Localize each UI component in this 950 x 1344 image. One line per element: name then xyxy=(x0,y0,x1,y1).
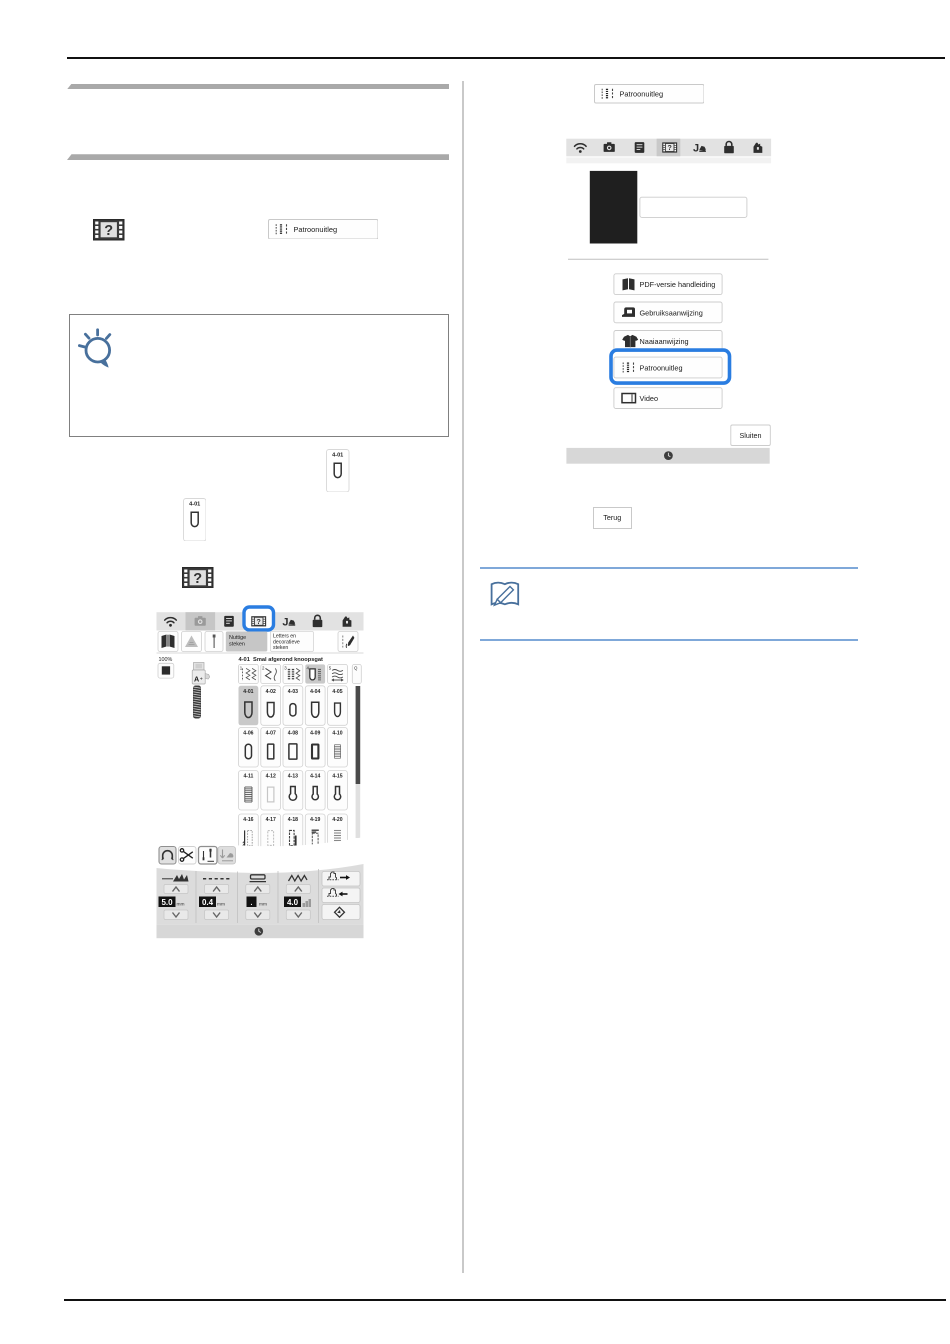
svg-text:4-01: 4-01 xyxy=(243,689,253,695)
svg-text:4-01 Smal afgerond knoopsgat: 4-01 Smal afgerond knoopsgat xyxy=(239,657,323,663)
svg-text:PDF-versie handleiding: PDF-versie handleiding xyxy=(640,280,716,289)
svg-text:4-09: 4-09 xyxy=(310,731,320,737)
svg-text:4-07: 4-07 xyxy=(266,731,276,737)
svg-text:4-08: 4-08 xyxy=(288,731,298,737)
svg-text:4-05: 4-05 xyxy=(332,689,342,695)
svg-text:4-12: 4-12 xyxy=(266,774,276,780)
svg-text:4-17: 4-17 xyxy=(266,817,276,823)
svg-text:steken: steken xyxy=(229,641,245,647)
svg-text:Sluiten: Sluiten xyxy=(740,431,762,440)
svg-text:4.0: 4.0 xyxy=(287,898,299,907)
svg-text:4-20: 4-20 xyxy=(332,817,342,823)
svg-text:steken: steken xyxy=(273,645,288,651)
svg-text:4-02: 4-02 xyxy=(266,689,276,695)
svg-text:4-04: 4-04 xyxy=(310,689,320,695)
svg-text:4-18: 4-18 xyxy=(288,817,298,823)
svg-text:?: ? xyxy=(193,571,202,587)
svg-text:0.4: 0.4 xyxy=(202,898,214,907)
svg-text:?: ? xyxy=(257,619,261,626)
svg-text:mm: mm xyxy=(177,903,185,908)
svg-text:Gebruiksaanwijzing: Gebruiksaanwijzing xyxy=(640,308,703,317)
svg-text:4-15: 4-15 xyxy=(332,774,342,780)
svg-text:?: ? xyxy=(104,223,113,239)
svg-text:.: . xyxy=(251,900,253,907)
svg-text:4-03: 4-03 xyxy=(288,689,298,695)
svg-text:4-06: 4-06 xyxy=(243,731,253,737)
svg-text:J: J xyxy=(282,616,288,628)
svg-text:Naaiaanwijzing: Naaiaanwijzing xyxy=(640,337,689,346)
svg-text:mm: mm xyxy=(217,903,225,908)
svg-text:4-14: 4-14 xyxy=(310,774,320,780)
svg-text:4-01: 4-01 xyxy=(189,501,200,507)
svg-text:4-19: 4-19 xyxy=(310,817,320,823)
svg-text:Patroonuitleg: Patroonuitleg xyxy=(640,363,683,372)
svg-text:4-16: 4-16 xyxy=(243,817,253,823)
svg-text:4-11: 4-11 xyxy=(243,774,253,780)
svg-text:Patroonuitleg: Patroonuitleg xyxy=(619,90,663,99)
svg-text:+: + xyxy=(200,677,203,683)
svg-text:A: A xyxy=(194,675,199,684)
svg-text:5.0: 5.0 xyxy=(161,898,173,907)
svg-text:?: ? xyxy=(668,145,672,152)
svg-text:Nuttige: Nuttige xyxy=(229,635,246,641)
svg-text:mm: mm xyxy=(259,903,267,908)
svg-text:Patroonuitleg: Patroonuitleg xyxy=(293,225,337,234)
svg-text:4-01: 4-01 xyxy=(332,452,343,458)
svg-text:Video: Video xyxy=(640,394,659,403)
svg-text:Q: Q xyxy=(354,665,358,670)
svg-text:4-10: 4-10 xyxy=(332,731,342,737)
svg-text:100%: 100% xyxy=(159,657,173,663)
svg-text:J: J xyxy=(693,143,699,155)
svg-text:4-13: 4-13 xyxy=(288,774,298,780)
